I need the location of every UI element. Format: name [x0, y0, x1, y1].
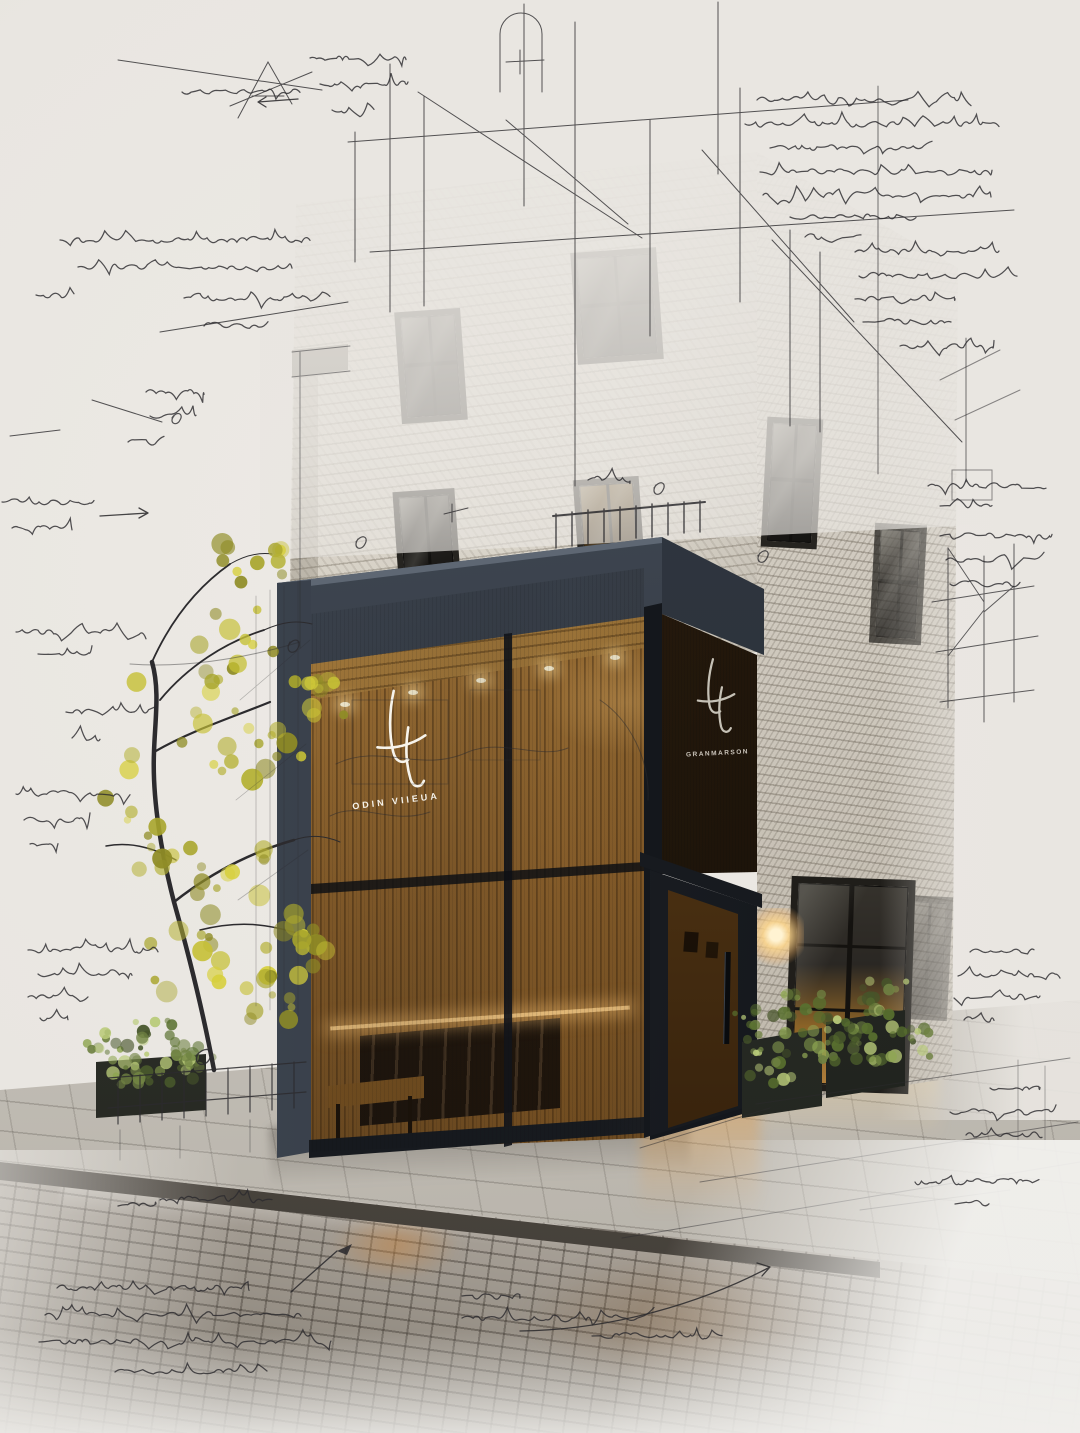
- note-left-small: [128, 390, 204, 445]
- note-bottom-center: [462, 1294, 654, 1325]
- note-tree: [66, 703, 156, 741]
- handwritten-annotations: [0, 0, 1080, 1433]
- note-left-paragraph: [36, 230, 330, 329]
- note-right-margin: [915, 1176, 1039, 1206]
- note-right-bottom: [950, 1086, 1056, 1137]
- note-left-bottom: [28, 939, 158, 1020]
- note-left-lower: [16, 787, 130, 852]
- annotation-arrows: [100, 97, 770, 1331]
- sketch-artwork-canvas: ODIN VIIEUA GRANMARSON: [0, 0, 1080, 1433]
- note-right-upper: [855, 241, 1017, 355]
- note-bottom-mid: [592, 1328, 722, 1339]
- note-brick-tiny: [588, 469, 630, 484]
- note-bottom-left: [39, 1281, 331, 1374]
- note-left-edge: [2, 497, 94, 534]
- note-cobbles: [118, 1190, 272, 1206]
- note-left-mid: [16, 623, 146, 655]
- note-right-lower: [954, 949, 1060, 1022]
- note-top-left: [182, 54, 408, 116]
- note-right-small: [928, 480, 1046, 508]
- note-right-mid: [940, 533, 1052, 587]
- note-top-right: [745, 92, 999, 243]
